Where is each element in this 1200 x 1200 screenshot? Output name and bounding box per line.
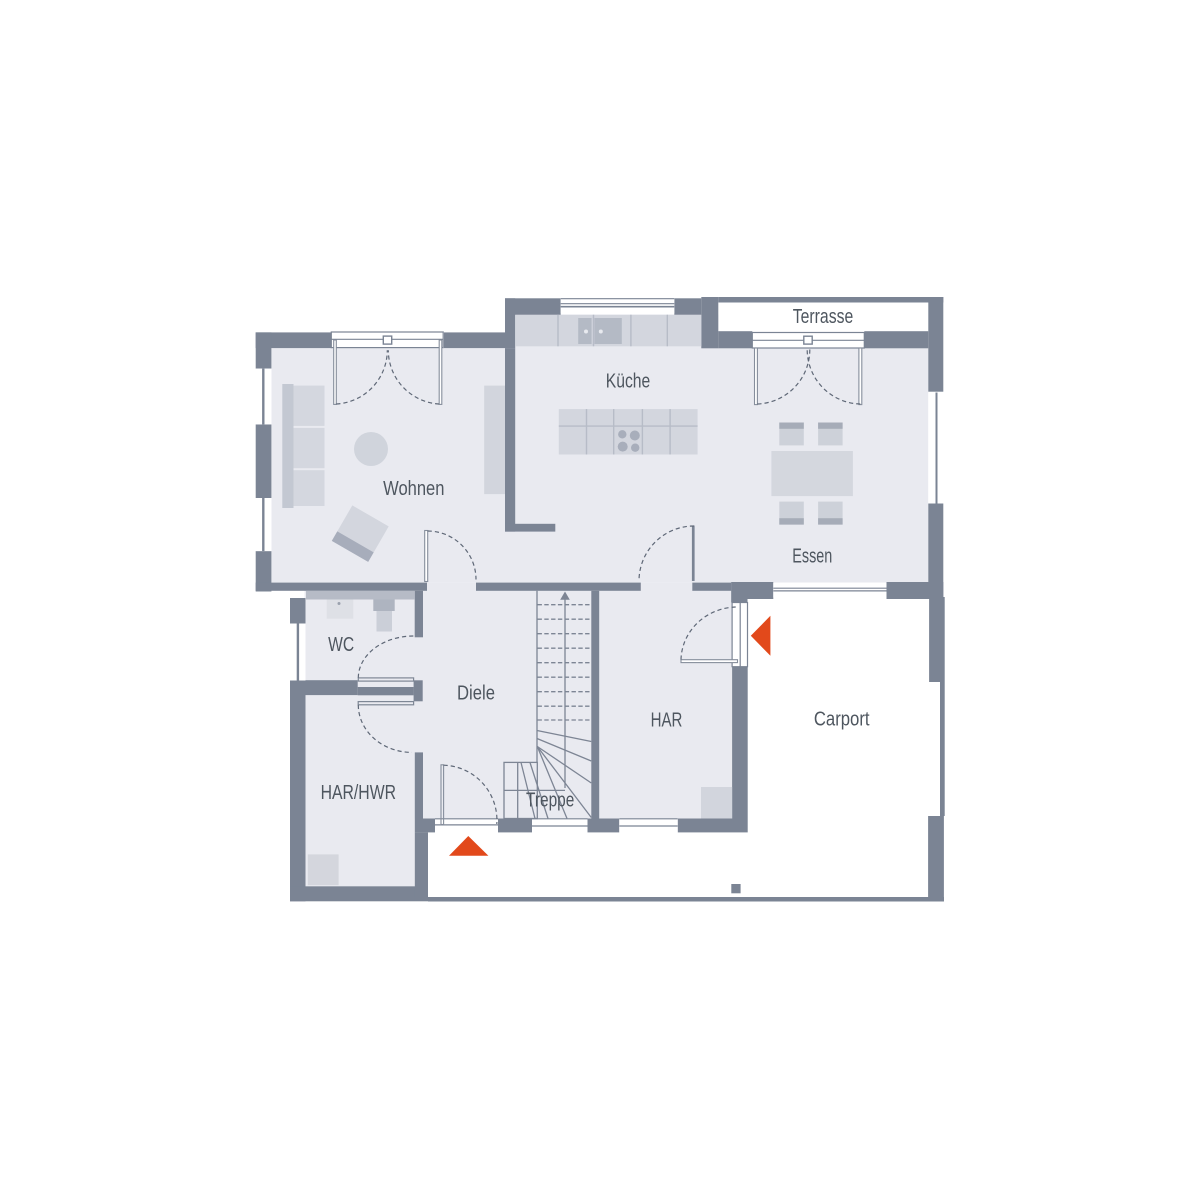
- svg-text:Küche: Küche: [606, 371, 651, 393]
- svg-text:WC: WC: [328, 634, 354, 656]
- svg-text:Diele: Diele: [457, 683, 495, 705]
- svg-text:Treppe: Treppe: [526, 790, 574, 812]
- svg-text:Terrasse: Terrasse: [793, 306, 854, 328]
- svg-text:Carport: Carport: [814, 709, 870, 731]
- svg-text:Wohnen: Wohnen: [383, 478, 444, 500]
- svg-text:HAR/HWR: HAR/HWR: [321, 782, 396, 804]
- svg-text:Essen: Essen: [792, 545, 832, 567]
- svg-text:HAR: HAR: [651, 709, 683, 731]
